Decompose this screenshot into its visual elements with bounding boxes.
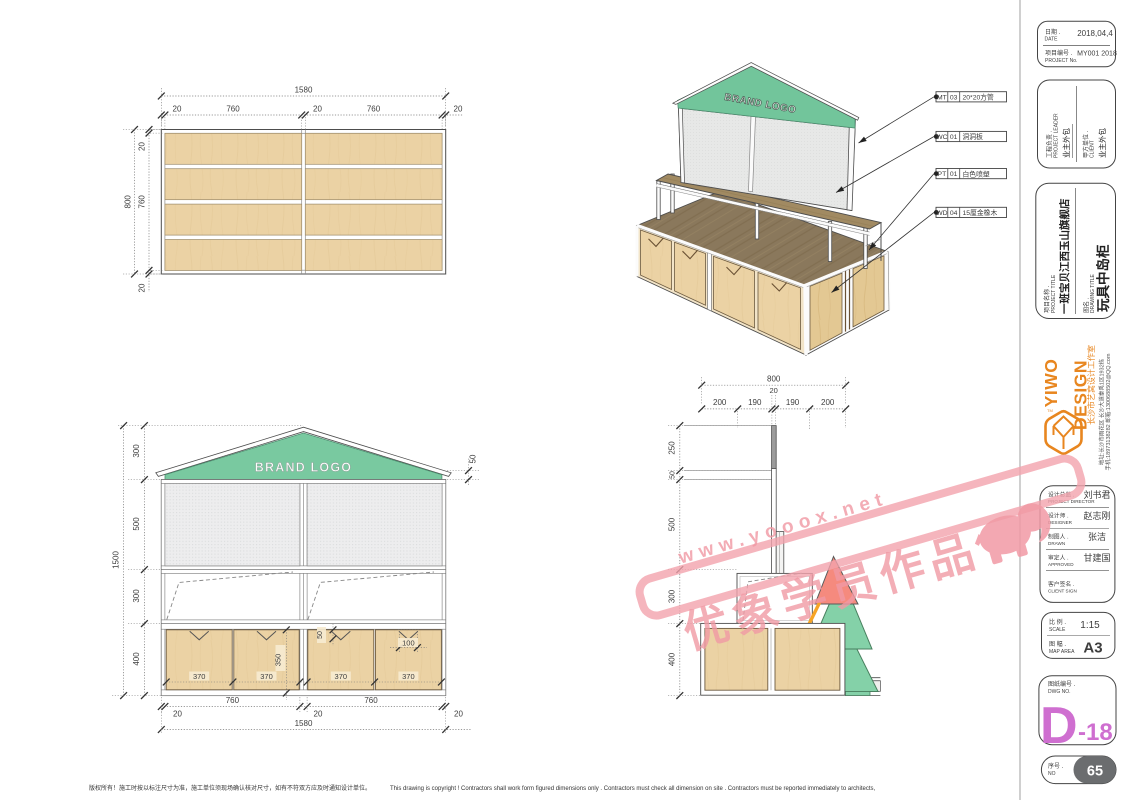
- svg-text:300: 300: [668, 589, 677, 603]
- svg-text:400: 400: [668, 652, 677, 666]
- svg-text:DRAWN: DRAWN: [1048, 541, 1065, 546]
- svg-text:370: 370: [193, 672, 206, 681]
- svg-text:500: 500: [668, 517, 677, 531]
- svg-text:20: 20: [173, 105, 182, 114]
- svg-text:2018,04,4: 2018,04,4: [1077, 29, 1113, 38]
- svg-text:D: D: [1040, 697, 1078, 755]
- svg-text:04: 04: [950, 210, 958, 217]
- svg-text:500: 500: [132, 517, 141, 531]
- svg-text:洞洞板: 洞洞板: [963, 132, 984, 141]
- svg-text:PROJECT LEADER: PROJECT LEADER: [1054, 113, 1060, 158]
- svg-text:手机:18973138282 邮箱:1300688502@Q: 手机:18973138282 邮箱:1300688502@QQ.com: [1104, 353, 1112, 470]
- svg-text:190: 190: [748, 398, 762, 407]
- svg-text:制图人 .: 制图人 .: [1048, 533, 1069, 541]
- svg-text:300: 300: [132, 589, 141, 603]
- svg-text:50: 50: [317, 631, 324, 639]
- svg-text:序号 .: 序号 .: [1048, 762, 1064, 770]
- svg-text:This drawing is copyright ! C: This drawing is copyright ! Contractors …: [390, 786, 876, 792]
- svg-text:400: 400: [132, 652, 141, 666]
- svg-text:地址:长沙市雨花区 长沙大道泰禹1区1932栋: 地址:长沙市雨花区 长沙大道泰禹1区1932栋: [1098, 358, 1106, 465]
- svg-text:-18: -18: [1078, 719, 1113, 746]
- svg-text:01: 01: [950, 171, 958, 178]
- svg-text:业主外包: 业主外包: [1061, 128, 1071, 158]
- svg-text:白色喷塑: 白色喷塑: [963, 169, 990, 178]
- svg-text:DESIGNER: DESIGNER: [1048, 520, 1073, 525]
- svg-text:370: 370: [260, 672, 273, 681]
- svg-text:03: 03: [950, 94, 958, 101]
- svg-text:200: 200: [713, 398, 727, 407]
- svg-text:YIWO: YIWO: [1041, 359, 1061, 408]
- svg-text:20: 20: [454, 105, 463, 114]
- svg-text:1500: 1500: [112, 551, 121, 569]
- svg-text:760: 760: [367, 105, 381, 114]
- svg-text:版权所有！施工时按以标注尺寸为准，施工单位须现场确认核对尺寸: 版权所有！施工时按以标注尺寸为准，施工单位须现场确认核对尺寸，如有不符双方应及时…: [89, 784, 371, 792]
- svg-text:200: 200: [821, 398, 835, 407]
- svg-text:玩具中岛柜: 玩具中岛柜: [1095, 244, 1111, 312]
- svg-text:20: 20: [138, 283, 147, 292]
- svg-text:比 例 .: 比 例 .: [1049, 618, 1066, 626]
- svg-text:赵志刚: 赵志刚: [1083, 510, 1110, 521]
- svg-text:审定人 .: 审定人 .: [1048, 553, 1069, 561]
- svg-text:800: 800: [767, 375, 781, 384]
- svg-text:张洁: 张洁: [1088, 531, 1106, 542]
- svg-text:300: 300: [132, 444, 141, 458]
- svg-text:800: 800: [124, 195, 133, 209]
- svg-text:工程负责 .: 工程负责 .: [1046, 130, 1054, 158]
- svg-text:20: 20: [454, 710, 463, 719]
- svg-text:MT: MT: [937, 94, 947, 101]
- svg-text:20: 20: [173, 710, 182, 719]
- svg-text:甘建国: 甘建国: [1083, 552, 1110, 563]
- svg-text:BRAND LOGO: BRAND LOGO: [255, 461, 352, 475]
- svg-text:250: 250: [668, 441, 677, 455]
- svg-text:A3: A3: [1083, 640, 1102, 657]
- svg-text:NO: NO: [1048, 771, 1056, 777]
- svg-text:50: 50: [670, 471, 677, 479]
- svg-text:DATE: DATE: [1045, 37, 1059, 43]
- svg-text:760: 760: [226, 105, 240, 114]
- svg-text:长沙市艺窝设计工作室: 长沙市艺窝设计工作室: [1086, 345, 1096, 425]
- svg-text:MY001 2018: MY001 2018: [1077, 51, 1117, 58]
- svg-text:CLIENT SIGN: CLIENT SIGN: [1048, 588, 1077, 593]
- svg-text:20: 20: [314, 710, 323, 719]
- svg-text:760: 760: [226, 696, 240, 705]
- svg-text:CLIENT: CLIENT: [1090, 140, 1096, 158]
- svg-text:项目编号 .: 项目编号 .: [1045, 49, 1073, 57]
- svg-text:50: 50: [469, 454, 478, 463]
- svg-text:MAP AREA: MAP AREA: [1049, 649, 1075, 655]
- svg-text:图纸编号 .: 图纸编号 .: [1048, 680, 1076, 688]
- svg-text:65: 65: [1087, 764, 1103, 780]
- svg-text:PT: PT: [938, 171, 947, 178]
- svg-text:客户签名 .: 客户签名 .: [1048, 580, 1075, 588]
- svg-text:15厘金橡木: 15厘金橡木: [963, 208, 998, 217]
- svg-text:20: 20: [138, 142, 147, 151]
- svg-text:设计师 .: 设计师 .: [1048, 511, 1069, 519]
- svg-text:760: 760: [138, 195, 147, 209]
- svg-text:01: 01: [950, 134, 958, 141]
- svg-text:20: 20: [770, 386, 778, 395]
- svg-text:业主外包: 业主外包: [1097, 128, 1107, 158]
- svg-text:1580: 1580: [295, 86, 313, 95]
- svg-text:100: 100: [402, 639, 415, 648]
- svg-text:图 幅 .: 图 幅 .: [1049, 640, 1066, 648]
- svg-text:一班宝贝江西玉山旗舰店: 一班宝贝江西玉山旗舰店: [1058, 198, 1071, 314]
- svg-text:日期 .: 日期 .: [1045, 28, 1061, 36]
- svg-text:PROJECT No.: PROJECT No.: [1045, 58, 1077, 64]
- svg-text:1:15: 1:15: [1080, 620, 1100, 631]
- svg-text:TM: TM: [1047, 408, 1053, 413]
- svg-text:760: 760: [364, 696, 378, 705]
- svg-text:350: 350: [274, 654, 283, 667]
- svg-text:刘书君: 刘书君: [1083, 489, 1110, 500]
- svg-text:SCALE: SCALE: [1049, 627, 1066, 633]
- svg-text:20: 20: [313, 105, 322, 114]
- svg-text:WC: WC: [936, 134, 947, 141]
- svg-text:项目名称 .: 项目名称 .: [1043, 285, 1051, 313]
- svg-text:PROJECT TITLE: PROJECT TITLE: [1051, 274, 1057, 313]
- svg-text:DWG NO.: DWG NO.: [1048, 689, 1071, 695]
- svg-text:WD: WD: [936, 210, 947, 217]
- svg-text:370: 370: [402, 672, 415, 681]
- svg-text:20*20方管: 20*20方管: [963, 93, 995, 102]
- svg-text:1580: 1580: [295, 719, 313, 728]
- svg-text:190: 190: [786, 398, 800, 407]
- svg-text:APPROVED: APPROVED: [1048, 562, 1074, 567]
- svg-text:370: 370: [335, 672, 348, 681]
